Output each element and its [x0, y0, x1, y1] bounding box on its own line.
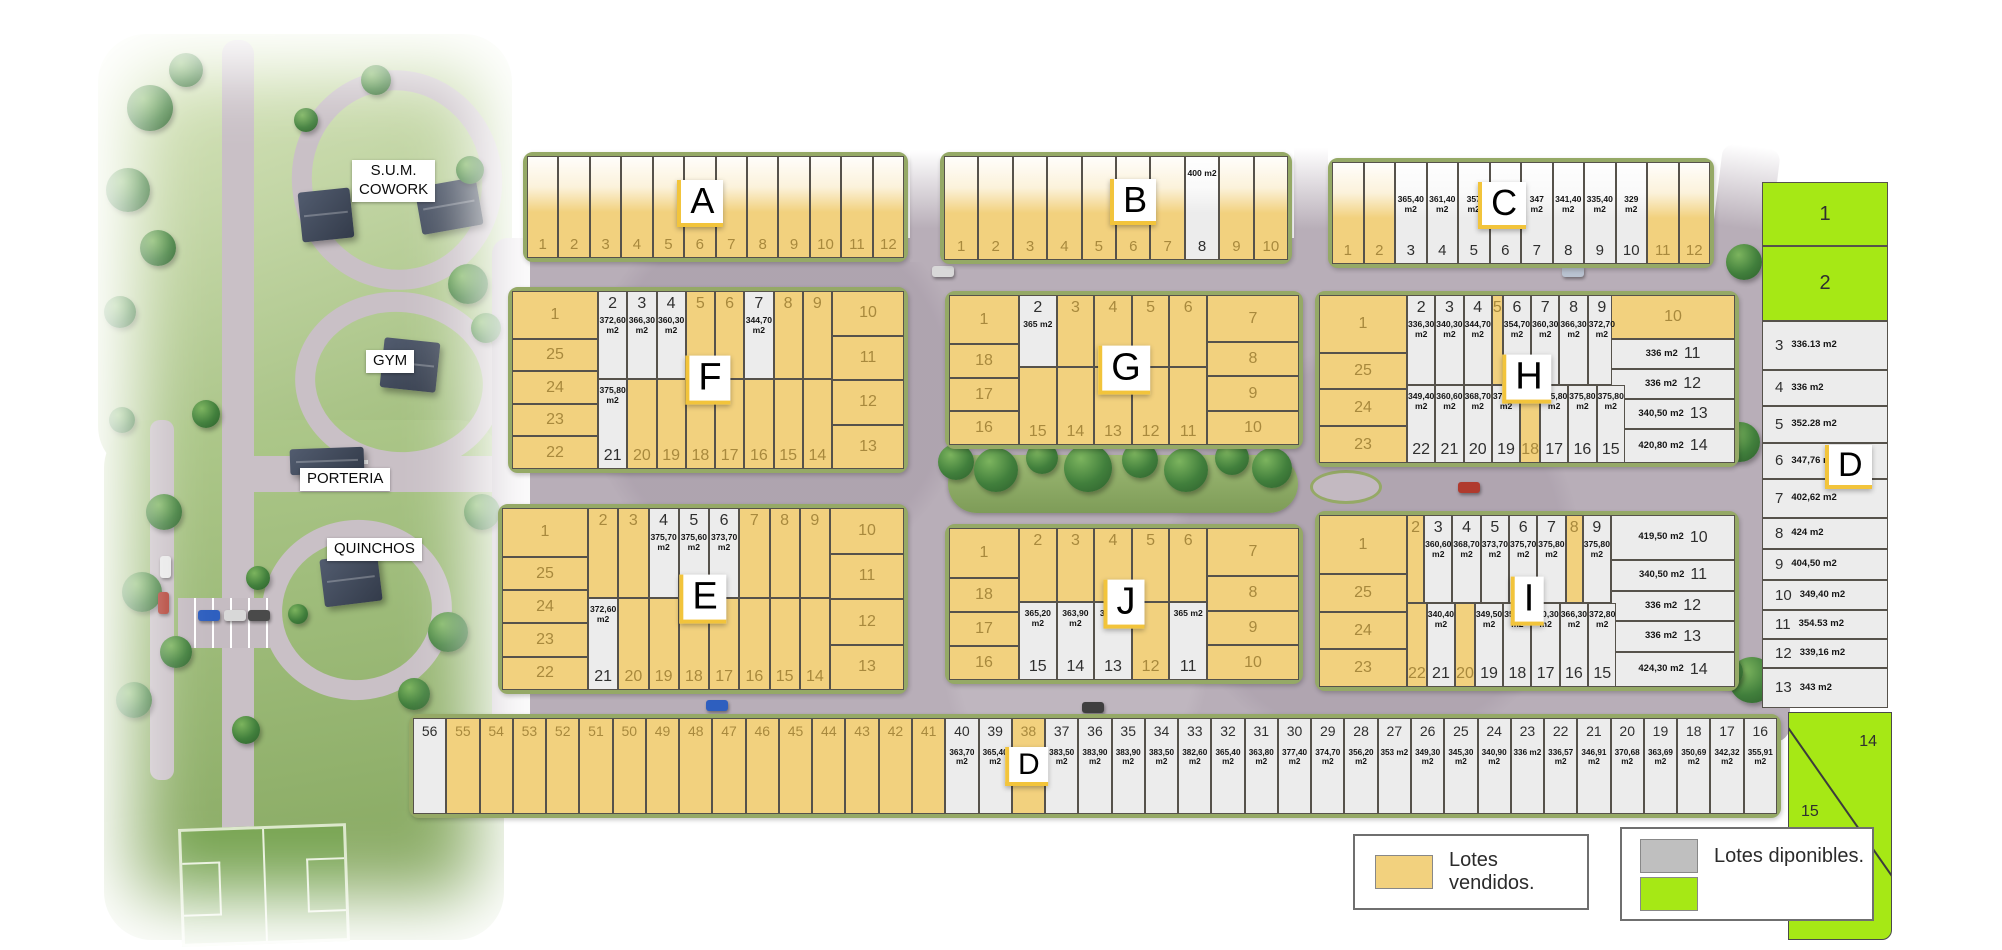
lot-DS-16[interactable]: 16355,91 m2 — [1744, 718, 1777, 814]
lot-H-1[interactable]: 1 — [1319, 295, 1407, 353]
lot-G-15[interactable]: 15 — [1019, 367, 1057, 445]
lot-H-13[interactable]: 340,50 m213 — [1611, 399, 1735, 429]
lot-F-4[interactable]: 4360,30 m2 — [657, 291, 686, 379]
lot-area: 336,57 m2 — [1545, 748, 1576, 766]
lot-number: 23 — [1354, 659, 1372, 677]
lot-number: 8 — [1249, 584, 1258, 602]
lot-E-16[interactable]: 16 — [739, 598, 769, 690]
lot-E-22[interactable]: 22 — [502, 657, 588, 690]
lot-DS-52[interactable]: 52 — [546, 718, 579, 814]
lot-E-21[interactable]: 372,60 m221 — [588, 598, 618, 690]
lot-G-10[interactable]: 10 — [1207, 411, 1299, 445]
lot-F-2[interactable]: 2372,60 m2 — [598, 291, 627, 379]
lot-number: 12 — [858, 613, 876, 631]
lot-number: 10 — [1244, 654, 1262, 672]
lot-E-23[interactable]: 23 — [502, 623, 588, 656]
lot-number: 11 — [859, 567, 876, 585]
lot-C-1[interactable]: 1 — [1332, 162, 1364, 264]
lot-number: 8 — [1569, 299, 1578, 317]
lot-number: 2 — [991, 238, 999, 255]
lot-H-25[interactable]: 25 — [1319, 353, 1407, 390]
lot-number: 13 — [1683, 628, 1701, 646]
lot-DS-29[interactable]: 29374,70 m2 — [1311, 718, 1344, 814]
lot-number: 15 — [1029, 423, 1047, 441]
block-label-DS: D — [1005, 747, 1049, 786]
lot-number: 12 — [1686, 242, 1703, 259]
lot-number: 12 — [1683, 375, 1701, 393]
lot-number: 50 — [621, 723, 637, 739]
lot-DS-19[interactable]: 19363,69 m2 — [1644, 718, 1677, 814]
lot-A-9[interactable]: 9 — [778, 156, 809, 258]
lot-number: 7 — [1533, 242, 1541, 259]
lot-area: 372,70 m2 — [1589, 320, 1615, 339]
lot-A-3[interactable]: 3 — [590, 156, 621, 258]
lot-DE-13[interactable]: 13343 m2 — [1762, 668, 1888, 708]
lot-DS-41[interactable]: 41 — [912, 718, 945, 814]
lot-number: 19 — [655, 668, 673, 686]
block-label-H: H — [1502, 355, 1551, 404]
lot-DE-3[interactable]: 3336.13 m2 — [1762, 321, 1888, 370]
lot-number: 2 — [1819, 272, 1830, 295]
lot-area: 366,30 m2 — [1560, 320, 1586, 339]
lot-area: 349,50 m2 — [1476, 610, 1502, 629]
lot-number: 12 — [880, 236, 897, 253]
lot-F-1[interactable]: 1 — [512, 291, 598, 339]
block-label-I: I — [1511, 577, 1544, 626]
lot-I-5[interactable]: 5373,70 m2 — [1481, 515, 1509, 603]
block-J: 11817162345678910365,20 m215363,90 m2143… — [945, 524, 1303, 684]
lot-number: 13 — [1104, 423, 1122, 441]
lot-G-8[interactable]: 8 — [1207, 342, 1299, 376]
lot-H-22[interactable]: 349,40 m222 — [1407, 385, 1435, 463]
lot-number: 24 — [536, 598, 554, 616]
lot-number: 25 — [536, 565, 554, 583]
lot-DS-35[interactable]: 35383,90 m2 — [1112, 718, 1145, 814]
lot-A-2[interactable]: 2 — [558, 156, 589, 258]
lot-H-21[interactable]: 360,60 m221 — [1435, 385, 1463, 463]
lot-G-11[interactable]: 11 — [1169, 367, 1207, 445]
lot-number: 44 — [821, 723, 837, 739]
lot-G-16[interactable]: 16 — [949, 411, 1019, 445]
lot-I-12[interactable]: 336 m212 — [1611, 591, 1735, 622]
lot-E-4[interactable]: 4375,70 m2 — [649, 508, 679, 598]
lot-number: 2 — [1411, 519, 1420, 537]
block-G: 11817162365 m23456789101514131211G — [945, 291, 1303, 449]
lot-area: 336 m2 — [1645, 379, 1677, 390]
lot-number: 8 — [1775, 525, 1783, 542]
lot-area: 336 m2 — [1512, 748, 1543, 757]
lot-DE-12[interactable]: 12339,16 m2 — [1762, 639, 1888, 668]
lot-H-20[interactable]: 368,70 m220 — [1464, 385, 1492, 463]
lot-number: 13 — [858, 658, 876, 676]
lot-DE-1[interactable]: 1 — [1762, 182, 1888, 246]
lot-I-8[interactable]: 8 — [1566, 515, 1583, 603]
lot-number: 7 — [754, 295, 763, 313]
lot-G-18[interactable]: 18 — [949, 344, 1019, 378]
lot-G-2[interactable]: 2365 m2 — [1019, 295, 1057, 367]
lot-H-14[interactable]: 420,80 m214 — [1611, 429, 1735, 463]
lot-E-2[interactable]: 2 — [588, 508, 618, 598]
lot-area: 345,30 m2 — [1445, 748, 1476, 766]
lot-DE-2[interactable]: 2 — [1762, 246, 1888, 321]
lot-J-9[interactable]: 9 — [1207, 611, 1299, 646]
lot-B-9[interactable]: 9 — [1219, 156, 1253, 260]
lot-DS-22[interactable]: 22336,57 m2 — [1544, 718, 1577, 814]
block-E-sec-left: 125242322 — [502, 508, 588, 690]
lot-I-13[interactable]: 336 m213 — [1611, 621, 1735, 652]
lot-number: 28 — [1353, 723, 1369, 739]
lot-H-5[interactable]: 5 — [1492, 295, 1503, 385]
lot-J-15[interactable]: 365,20 m215 — [1019, 602, 1057, 680]
lot-C-8[interactable]: 8341,40 m2 — [1553, 162, 1585, 264]
lot-B-2[interactable]: 2 — [978, 156, 1012, 260]
lot-A-10[interactable]: 10 — [810, 156, 841, 258]
lot-number: 10 — [1690, 529, 1708, 547]
lot-DS-48[interactable]: 48 — [679, 718, 712, 814]
lot-number: 7 — [1163, 238, 1171, 255]
lot-F-3[interactable]: 3366,30 m2 — [627, 291, 656, 379]
lot-J-6[interactable]: 6 — [1169, 528, 1207, 602]
lot-number: 9 — [1775, 556, 1783, 573]
lot-DS-24[interactable]: 24340,90 m2 — [1478, 718, 1511, 814]
lot-area: 349,30 m2 — [1412, 748, 1443, 766]
lot-area: 340,50 m2 — [1638, 409, 1683, 420]
block-G-sec-left: 1181716 — [949, 295, 1019, 445]
lot-DE-5[interactable]: 5352.28 m2 — [1762, 406, 1888, 443]
lot-I-14[interactable]: 424,30 m214 — [1611, 652, 1735, 687]
lot-area: 404,50 m2 — [1791, 559, 1836, 570]
lot-G-14[interactable]: 14 — [1057, 367, 1095, 445]
lot-F-12[interactable]: 12 — [832, 380, 904, 425]
lot-I-11[interactable]: 340,50 m211 — [1611, 560, 1735, 591]
lot-I-20[interactable]: 20 — [1455, 603, 1475, 687]
lot-C-4[interactable]: 4361,40 m2 — [1427, 162, 1459, 264]
lot-F-8[interactable]: 8 — [774, 291, 803, 379]
lot-F-19[interactable]: 19 — [657, 379, 686, 469]
lot-number: 2 — [1417, 299, 1426, 317]
lot-E-13[interactable]: 13 — [830, 645, 904, 691]
lot-area: 373,70 m2 — [1482, 540, 1508, 559]
lot-DS-32[interactable]: 32365,40 m2 — [1211, 718, 1244, 814]
lot-H-8[interactable]: 8366,30 m2 — [1559, 295, 1587, 385]
lot-G-9[interactable]: 9 — [1207, 376, 1299, 410]
lot-DE-8[interactable]: 8424 m2 — [1762, 518, 1888, 549]
lot-E-7[interactable]: 7 — [739, 508, 769, 598]
block-H-sec-left: 1252423 — [1319, 295, 1407, 463]
lot-DS-54[interactable]: 54 — [480, 718, 513, 814]
lot-E-15[interactable]: 15 — [770, 598, 800, 690]
lot-area: 340,40 m2 — [1428, 610, 1454, 629]
lot-number: 4 — [1109, 532, 1118, 550]
lot-A-11[interactable]: 11 — [841, 156, 872, 258]
lot-H-3[interactable]: 3340,30 m2 — [1435, 295, 1463, 385]
lot-DS-28[interactable]: 28356,20 m2 — [1344, 718, 1377, 814]
lot-number: 17 — [975, 620, 993, 638]
lot-F-15[interactable]: 15 — [774, 379, 803, 469]
lot-B-10[interactable]: 10 — [1254, 156, 1288, 260]
lot-number: 11 — [860, 349, 877, 367]
lot-number: 16 — [1565, 665, 1583, 683]
lot-J-8[interactable]: 8 — [1207, 576, 1299, 611]
lot-I-22[interactable]: 22 — [1407, 603, 1427, 687]
lot-number: 7 — [1541, 299, 1550, 317]
lot-number: 20 — [1456, 665, 1474, 683]
lot-DE-9[interactable]: 9404,50 m2 — [1762, 549, 1888, 580]
lot-number: 22 — [1412, 441, 1430, 459]
block-label-G: G — [1098, 346, 1150, 395]
lot-H-10[interactable]: 10 — [1611, 295, 1735, 339]
lot-J-10[interactable]: 10 — [1207, 645, 1299, 680]
lot-E-11[interactable]: 11 — [830, 554, 904, 600]
lot-E-8[interactable]: 8 — [770, 508, 800, 598]
lot-D-14[interactable]: 14 — [1859, 733, 1877, 751]
lot-E-19[interactable]: 19 — [649, 598, 679, 690]
lot-DS-20[interactable]: 20370,68 m2 — [1611, 718, 1644, 814]
lot-number: 10 — [858, 522, 876, 540]
lot-number: 9 — [1249, 385, 1258, 403]
lot-area: 402,62 m2 — [1791, 493, 1836, 504]
lot-G-1[interactable]: 1 — [949, 295, 1019, 344]
lot-number: 8 — [780, 512, 789, 530]
lot-number: 25 — [1453, 723, 1469, 739]
block-I-sec-left: 1252423 — [1319, 515, 1407, 687]
lot-number: 20 — [1619, 723, 1635, 739]
block-I-sec-bottom: 22340,40 m22120349,50 m219354,70 m218360… — [1407, 603, 1611, 687]
lot-E-25[interactable]: 25 — [502, 557, 588, 590]
lot-number: 5 — [1490, 519, 1499, 537]
lot-DS-37[interactable]: 37383,50 m2 — [1045, 718, 1078, 814]
lot-DE-10[interactable]: 10349,40 m2 — [1762, 580, 1888, 610]
lot-number: 2 — [1033, 532, 1042, 550]
lot-H-23[interactable]: 23 — [1319, 426, 1407, 463]
lot-F-13[interactable]: 13 — [832, 425, 904, 470]
lot-E-24[interactable]: 24 — [502, 590, 588, 623]
lot-B-3[interactable]: 3 — [1013, 156, 1047, 260]
lot-I-2[interactable]: 2 — [1407, 515, 1424, 603]
lot-number: 12 — [859, 393, 877, 411]
lot-E-14[interactable]: 14 — [800, 598, 830, 690]
lot-number: 17 — [975, 386, 993, 404]
lot-B-1[interactable]: 1 — [944, 156, 978, 260]
lot-I-1[interactable]: 1 — [1319, 515, 1407, 574]
lot-area: 344,70 m2 — [1465, 320, 1491, 339]
lot-I-4[interactable]: 4368,70 m2 — [1452, 515, 1480, 603]
lot-B-4[interactable]: 4 — [1047, 156, 1081, 260]
lot-F-23[interactable]: 23 — [512, 404, 598, 437]
lot-number: 33 — [1187, 723, 1203, 739]
lot-A-8[interactable]: 8 — [747, 156, 778, 258]
lot-area: 365 m2 — [1170, 609, 1206, 619]
lot-DS-42[interactable]: 42 — [879, 718, 912, 814]
lot-G-3[interactable]: 3 — [1057, 295, 1095, 367]
lot-D-15[interactable]: 15 — [1801, 803, 1819, 821]
lot-number: 3 — [1026, 238, 1034, 255]
lot-number: 9 — [1597, 299, 1606, 317]
lot-H-16[interactable]: 375,80 m216 — [1568, 385, 1596, 463]
lot-DS-40[interactable]: 40363,70 m2 — [945, 718, 978, 814]
lot-DS-46[interactable]: 46 — [746, 718, 779, 814]
lot-F-11[interactable]: 11 — [832, 336, 904, 381]
lot-DS-18[interactable]: 18350,69 m2 — [1677, 718, 1710, 814]
lot-J-3[interactable]: 3 — [1057, 528, 1095, 602]
lot-DS-55[interactable]: 55 — [446, 718, 479, 814]
lot-number: 1 — [1344, 242, 1352, 259]
lot-E-1[interactable]: 1 — [502, 508, 588, 557]
lot-I-21[interactable]: 340,40 m221 — [1427, 603, 1455, 687]
lot-number: 54 — [488, 723, 504, 739]
lot-number: 49 — [655, 723, 671, 739]
lot-DS-31[interactable]: 31363,80 m2 — [1245, 718, 1278, 814]
lot-F-7[interactable]: 7344,70 m2 — [744, 291, 773, 379]
lot-F-25[interactable]: 25 — [512, 339, 598, 372]
lot-F-20[interactable]: 20 — [627, 379, 656, 469]
lot-DS-17[interactable]: 17342,32 m2 — [1710, 718, 1743, 814]
lot-DS-21[interactable]: 21346,91 m2 — [1577, 718, 1610, 814]
lot-E-3[interactable]: 3 — [618, 508, 648, 598]
lot-J-16[interactable]: 16 — [949, 646, 1019, 680]
lot-H-4[interactable]: 4344,70 m2 — [1464, 295, 1492, 385]
lot-number: 25 — [1354, 362, 1372, 380]
lot-number: 18 — [1521, 441, 1539, 459]
lot-F-21[interactable]: 375,80 m221 — [598, 379, 627, 469]
lot-DS-36[interactable]: 36383,90 m2 — [1078, 718, 1111, 814]
lot-DS-45[interactable]: 45 — [779, 718, 812, 814]
lot-H-24[interactable]: 24 — [1319, 389, 1407, 426]
lot-DS-26[interactable]: 26349,30 m2 — [1411, 718, 1444, 814]
lot-number: 17 — [1719, 723, 1735, 739]
lot-H-12[interactable]: 336 m212 — [1611, 369, 1735, 399]
lot-area: 341,40 m2 — [1554, 195, 1582, 214]
lot-F-10[interactable]: 10 — [832, 291, 904, 336]
lot-area: 372,80 m2 — [1589, 610, 1615, 629]
lot-J-11[interactable]: 365 m211 — [1169, 602, 1207, 680]
lot-I-15[interactable]: 372,80 m215 — [1588, 603, 1616, 687]
lot-DS-47[interactable]: 47 — [712, 718, 745, 814]
lot-DS-56[interactable]: 56 — [413, 718, 446, 814]
lot-H-15[interactable]: 375,80 m215 — [1597, 385, 1625, 463]
lot-number: 8 — [1570, 519, 1579, 537]
lot-I-16[interactable]: 366,30 m216 — [1560, 603, 1588, 687]
lot-C-2[interactable]: 2 — [1364, 162, 1396, 264]
lot-J-1[interactable]: 1 — [949, 528, 1019, 578]
lot-H-11[interactable]: 336 m211 — [1611, 339, 1735, 369]
lot-number: 9 — [1249, 619, 1258, 637]
lot-E-10[interactable]: 10 — [830, 508, 904, 554]
lot-number: 4 — [633, 236, 641, 253]
lot-E-9[interactable]: 9 — [800, 508, 830, 598]
legend-available-label: Lotes diponibles. — [1714, 845, 1864, 868]
lot-number: 7 — [1249, 310, 1258, 328]
lot-H-2[interactable]: 2336,30 m2 — [1407, 295, 1435, 385]
lot-J-17[interactable]: 17 — [949, 612, 1019, 646]
lot-J-7[interactable]: 7 — [1207, 528, 1299, 576]
lot-C-9[interactable]: 9335,40 m2 — [1584, 162, 1616, 264]
lot-F-14[interactable]: 14 — [803, 379, 832, 469]
lot-C-12[interactable]: 12 — [1679, 162, 1711, 264]
lot-C-3[interactable]: 3365,40 m2 — [1395, 162, 1427, 264]
lot-DS-49[interactable]: 49 — [646, 718, 679, 814]
lot-number: 11 — [1684, 345, 1701, 363]
lot-number: 21 — [1586, 723, 1602, 739]
lot-number: 15 — [1593, 665, 1611, 683]
lot-F-24[interactable]: 24 — [512, 371, 598, 404]
lot-E-12[interactable]: 12 — [830, 599, 904, 645]
lot-J-2[interactable]: 2 — [1019, 528, 1057, 602]
lot-C-10[interactable]: 10329 m2 — [1616, 162, 1648, 264]
lot-G-7[interactable]: 7 — [1207, 295, 1299, 342]
lot-area: 400 m2 — [1186, 169, 1217, 179]
lot-I-9[interactable]: 9375,80 m2 — [1583, 515, 1611, 603]
lot-number: 14 — [1066, 658, 1084, 676]
lot-G-17[interactable]: 17 — [949, 378, 1019, 412]
lot-number: 6 — [696, 236, 704, 253]
lot-DS-25[interactable]: 25345,30 m2 — [1444, 718, 1477, 814]
lot-C-11[interactable]: 11 — [1647, 162, 1679, 264]
lot-DS-53[interactable]: 53 — [513, 718, 546, 814]
lot-DS-33[interactable]: 33382,60 m2 — [1178, 718, 1211, 814]
lot-DS-34[interactable]: 34383,50 m2 — [1145, 718, 1178, 814]
lot-I-23[interactable]: 23 — [1319, 649, 1407, 687]
lot-J-18[interactable]: 18 — [949, 578, 1019, 612]
lot-F-22[interactable]: 22 — [512, 436, 598, 469]
lot-E-20[interactable]: 20 — [618, 598, 648, 690]
lot-number: 9 — [1596, 242, 1604, 259]
lot-DS-44[interactable]: 44 — [812, 718, 845, 814]
lot-DS-51[interactable]: 51 — [579, 718, 612, 814]
lot-I-10[interactable]: 419,50 m210 — [1611, 515, 1735, 560]
lot-number: 7 — [1547, 519, 1556, 537]
lot-A-1[interactable]: 1 — [527, 156, 558, 258]
lot-number: 11 — [1180, 658, 1197, 676]
lot-I-24[interactable]: 24 — [1319, 612, 1407, 650]
lot-area: 343 m2 — [1800, 683, 1832, 694]
lot-number: 24 — [546, 379, 564, 397]
lot-A-4[interactable]: 4 — [621, 156, 652, 258]
lot-area: 383,90 m2 — [1079, 748, 1110, 766]
lot-J-14[interactable]: 363,90 m214 — [1057, 602, 1095, 680]
lot-number: 15 — [776, 668, 794, 686]
lot-B-8[interactable]: 8400 m2 — [1185, 156, 1219, 260]
lot-number: 25 — [546, 346, 564, 364]
lot-DE-11[interactable]: 11354.53 m2 — [1762, 610, 1888, 639]
lot-area: 360,30 m2 — [1532, 320, 1558, 339]
label-quinchos: QUINCHOS — [327, 538, 422, 561]
lot-area: 375,80 m2 — [1598, 392, 1624, 411]
lot-I-25[interactable]: 25 — [1319, 574, 1407, 612]
lot-DS-43[interactable]: 43 — [845, 718, 878, 814]
lot-area: 340,50 m2 — [1639, 570, 1684, 581]
lot-F-16[interactable]: 16 — [744, 379, 773, 469]
lot-G-6[interactable]: 6 — [1169, 295, 1207, 367]
lot-DS-50[interactable]: 50 — [613, 718, 646, 814]
block-H: 12524232336,30 m23340,30 m24344,70 m2563… — [1315, 291, 1739, 467]
lot-number: 45 — [788, 723, 804, 739]
lot-number: 32 — [1220, 723, 1236, 739]
lot-DS-30[interactable]: 30377,40 m2 — [1278, 718, 1311, 814]
lot-F-9[interactable]: 9 — [803, 291, 832, 379]
lot-DE-4[interactable]: 4336 m2 — [1762, 370, 1888, 407]
lot-area: 365,40 m2 — [1397, 195, 1425, 214]
lot-A-12[interactable]: 12 — [873, 156, 904, 258]
lot-I-19[interactable]: 349,50 m219 — [1475, 603, 1503, 687]
lot-DS-27[interactable]: 27353 m2 — [1378, 718, 1411, 814]
lot-area: 349,40 m2 — [1408, 392, 1434, 411]
lot-I-3[interactable]: 3360,60 m2 — [1424, 515, 1452, 603]
lot-DS-23[interactable]: 23336 m2 — [1511, 718, 1544, 814]
lot-number: 24 — [1354, 399, 1372, 417]
lot-number: 20 — [624, 668, 642, 686]
lot-number: 2 — [1033, 299, 1042, 317]
